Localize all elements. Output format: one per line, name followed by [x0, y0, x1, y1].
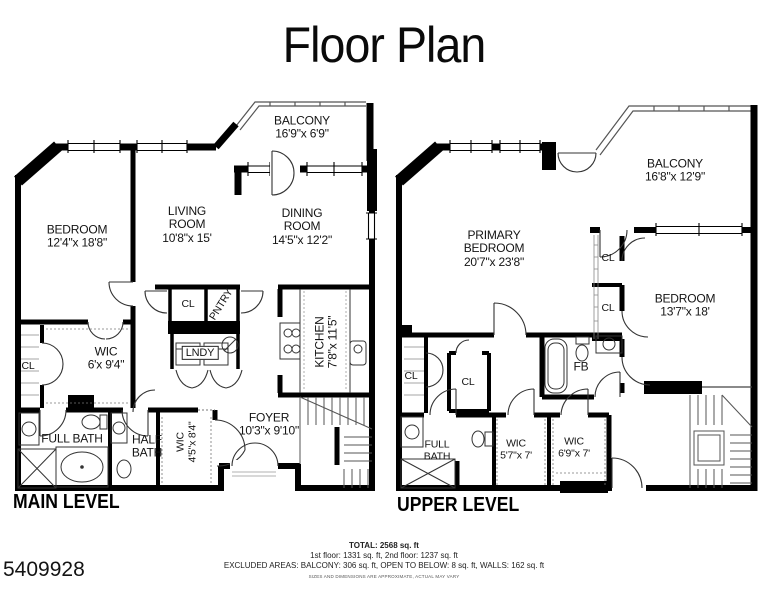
staircase: [690, 395, 752, 488]
upper-level-plan: BALCONY 16'8"x 12'9" PRIMARY BEDROOM 20'…: [394, 95, 766, 525]
room-label-laundry: LNDY: [182, 346, 219, 360]
total-area-text: TOTAL: 2568 sq. ft: [0, 541, 768, 550]
room-label-wic: WIC 6'x 9'4": [88, 346, 125, 373]
room-label-kitchen: KITCHEN 7'8"x 11'5": [314, 316, 341, 369]
room-label-wic-2: WIC 4'5"x 8'4": [175, 422, 199, 463]
room-label-wic-2: WIC 6'9"x 7': [558, 436, 590, 460]
room-label-full-bath: FULL BATH: [424, 439, 450, 463]
excluded-areas-text: EXCLUDED AREAS: BALCONY: 306 sq. ft, OPE…: [0, 561, 768, 570]
disclaimer-text: SIZES AND DIMENSIONS ARE APPROXIMATE, AC…: [0, 574, 768, 579]
room-label-bedroom: BEDROOM 13'7"x 18': [655, 293, 716, 320]
room-label-balcony: BALCONY 16'9"x 6'9": [274, 115, 330, 142]
floor-plan-page: { "page": { "title": "Floor Plan", "list…: [0, 0, 768, 594]
balcony-railing: [596, 106, 751, 155]
room-label-fb: FB: [574, 360, 589, 373]
room-label-closet-2: CL: [21, 361, 34, 373]
area-summary: TOTAL: 2568 sq. ft 1st floor: 1331 sq. f…: [0, 541, 768, 579]
room-label-bedroom: BEDROOM 12'4"x 18'8": [47, 224, 108, 251]
main-level-plan: BALCONY 16'9"x 6'9" BEDROOM 12'4"x 18'8"…: [10, 95, 382, 515]
upper-level-caption: UPPER LEVEL: [397, 494, 519, 517]
room-label-balcony: BALCONY 16'8"x 12'9": [645, 158, 705, 185]
room-label-closet-4: CL: [461, 377, 474, 389]
room-label-wic-1: WIC 5'7"x 7': [500, 438, 532, 462]
page-title: Floor Plan: [27, 16, 741, 74]
floor-areas-text: 1st floor: 1331 sq. ft, 2nd floor: 1237 …: [0, 551, 768, 560]
room-label-closet-2: CL: [601, 303, 614, 315]
main-level-caption: MAIN LEVEL: [13, 491, 120, 514]
room-label-half-bath: HALF BATH: [132, 434, 162, 461]
room-label-closet-3: CL: [404, 371, 417, 383]
room-label-living-room: LIVING ROOM 10'8"x 15': [162, 205, 212, 245]
room-label-foyer: FOYER 10'3"x 9'10": [239, 412, 299, 439]
room-label-dining-room: DINING ROOM 14'5"x 12'2": [272, 207, 332, 247]
door-arcs: [426, 153, 650, 494]
listing-id: 5409928: [3, 558, 85, 582]
room-label-full-bath: FULL BATH: [41, 432, 103, 445]
room-label-closet: CL: [181, 299, 194, 311]
room-label-closet-1: CL: [601, 253, 614, 265]
room-label-primary-bedroom: PRIMARY BEDROOM 20'7"x 23'8": [464, 229, 525, 269]
